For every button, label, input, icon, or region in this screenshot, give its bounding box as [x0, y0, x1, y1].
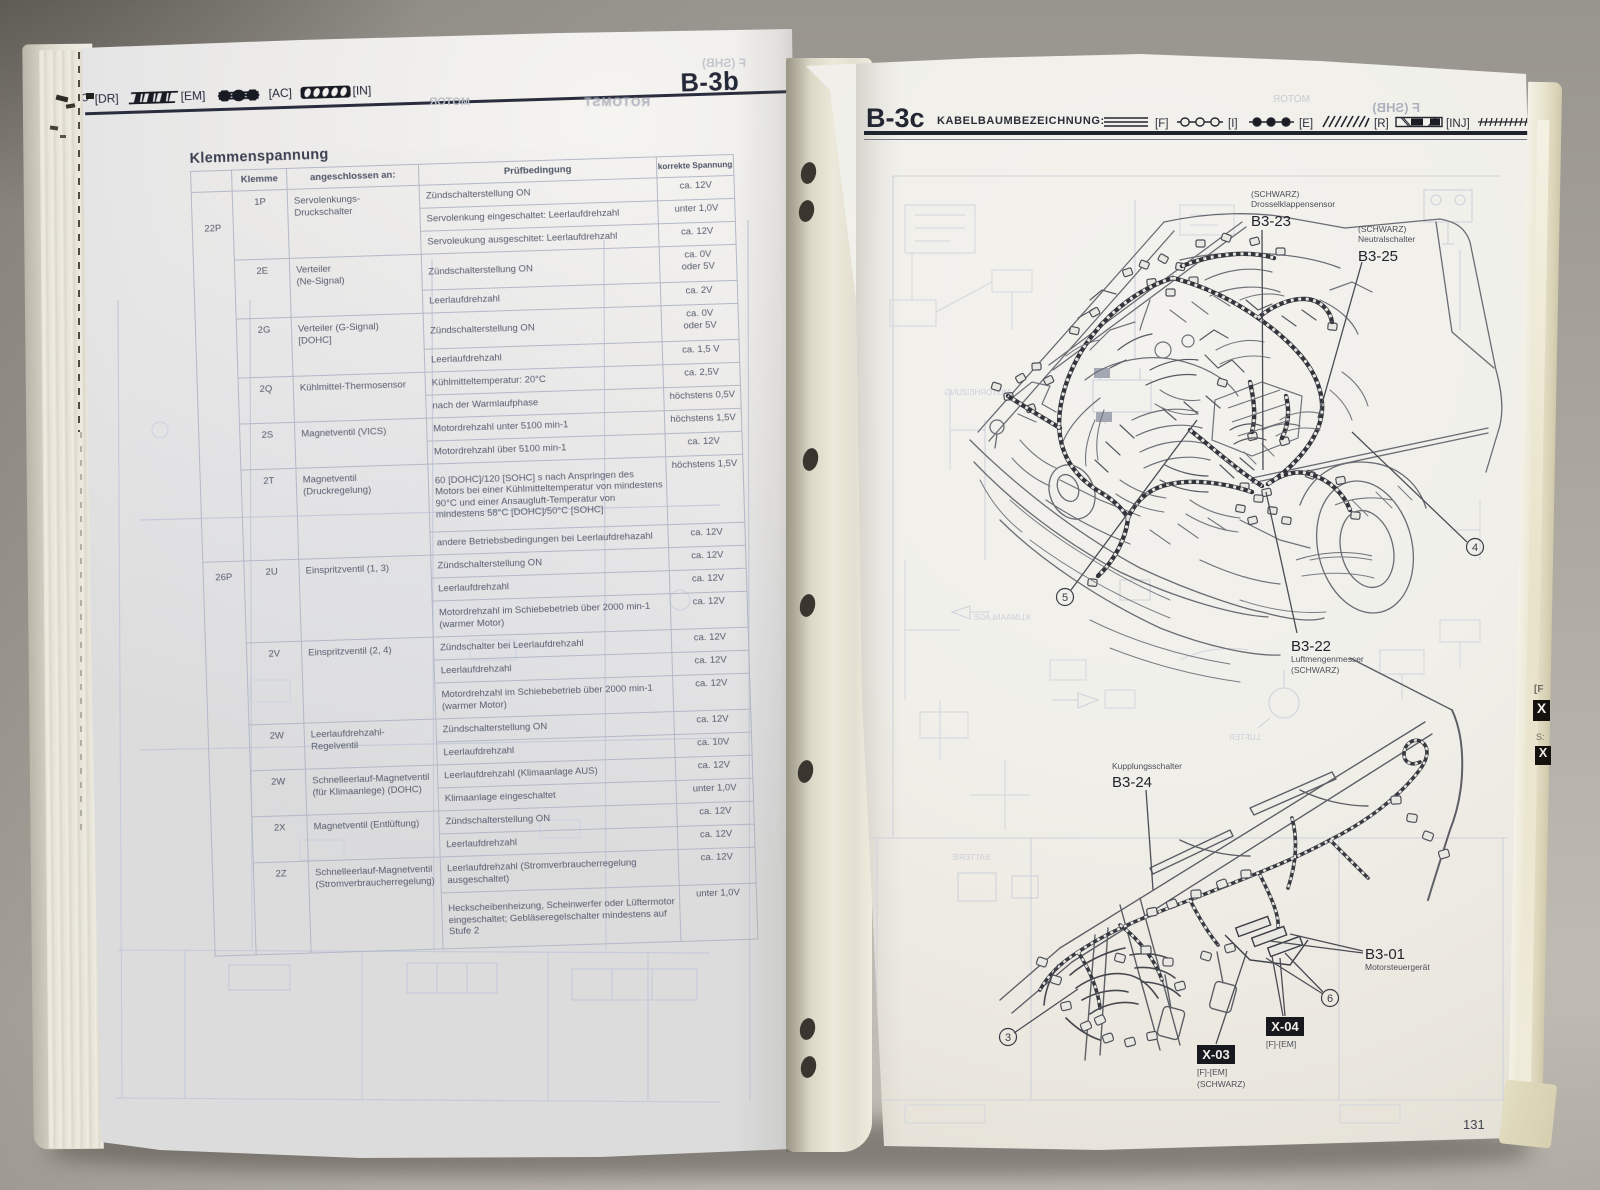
svg-text:3: 3 — [1005, 1032, 1011, 1044]
svg-text:Neutralschalter: Neutralschalter — [1358, 234, 1415, 244]
svg-text:B3-23: B3-23 — [1251, 213, 1291, 230]
svg-text:B3-22: B3-22 — [1291, 638, 1331, 655]
svg-text:F (SHB): F (SHB) — [1372, 100, 1420, 115]
svg-text:B3-24: B3-24 — [1112, 774, 1152, 791]
svg-text:Motorsteuergerät: Motorsteuergerät — [1365, 962, 1430, 972]
svg-text:KLIMAANLAGE: KLIMAANLAGE — [974, 613, 1030, 622]
svg-text:(SCHWARZ): (SCHWARZ) — [1291, 665, 1339, 675]
svg-text:5: 5 — [1062, 592, 1068, 604]
svg-text:(SCHWARZ): (SCHWARZ) — [1197, 1079, 1245, 1089]
svg-text:[F]-[EM]: [F]-[EM] — [1266, 1039, 1296, 1049]
svg-text:6: 6 — [1327, 993, 1333, 1005]
svg-text:X-04: X-04 — [1271, 1019, 1299, 1034]
svg-text:(SCHWARZ): (SCHWARZ) — [1251, 189, 1299, 199]
svg-text:4: 4 — [1472, 542, 1478, 554]
svg-text:Drosselklappensensor: Drosselklappensensor — [1251, 199, 1335, 209]
svg-text:[F]-[EM]: [F]-[EM] — [1197, 1067, 1227, 1077]
svg-text:MOTOR: MOTOR — [1273, 94, 1310, 105]
svg-text:B3-01: B3-01 — [1365, 946, 1405, 963]
svg-text:X-03: X-03 — [1202, 1047, 1229, 1062]
svg-text:B3-25: B3-25 — [1358, 248, 1398, 265]
svg-text:LUFTER: LUFTER — [1229, 733, 1260, 742]
svg-text:(SCHWARZ): (SCHWARZ) — [1358, 224, 1406, 234]
svg-text:BATTERIE: BATTERIE — [951, 853, 990, 862]
svg-text:Kupplungsschalter: Kupplungsschalter — [1112, 761, 1182, 771]
